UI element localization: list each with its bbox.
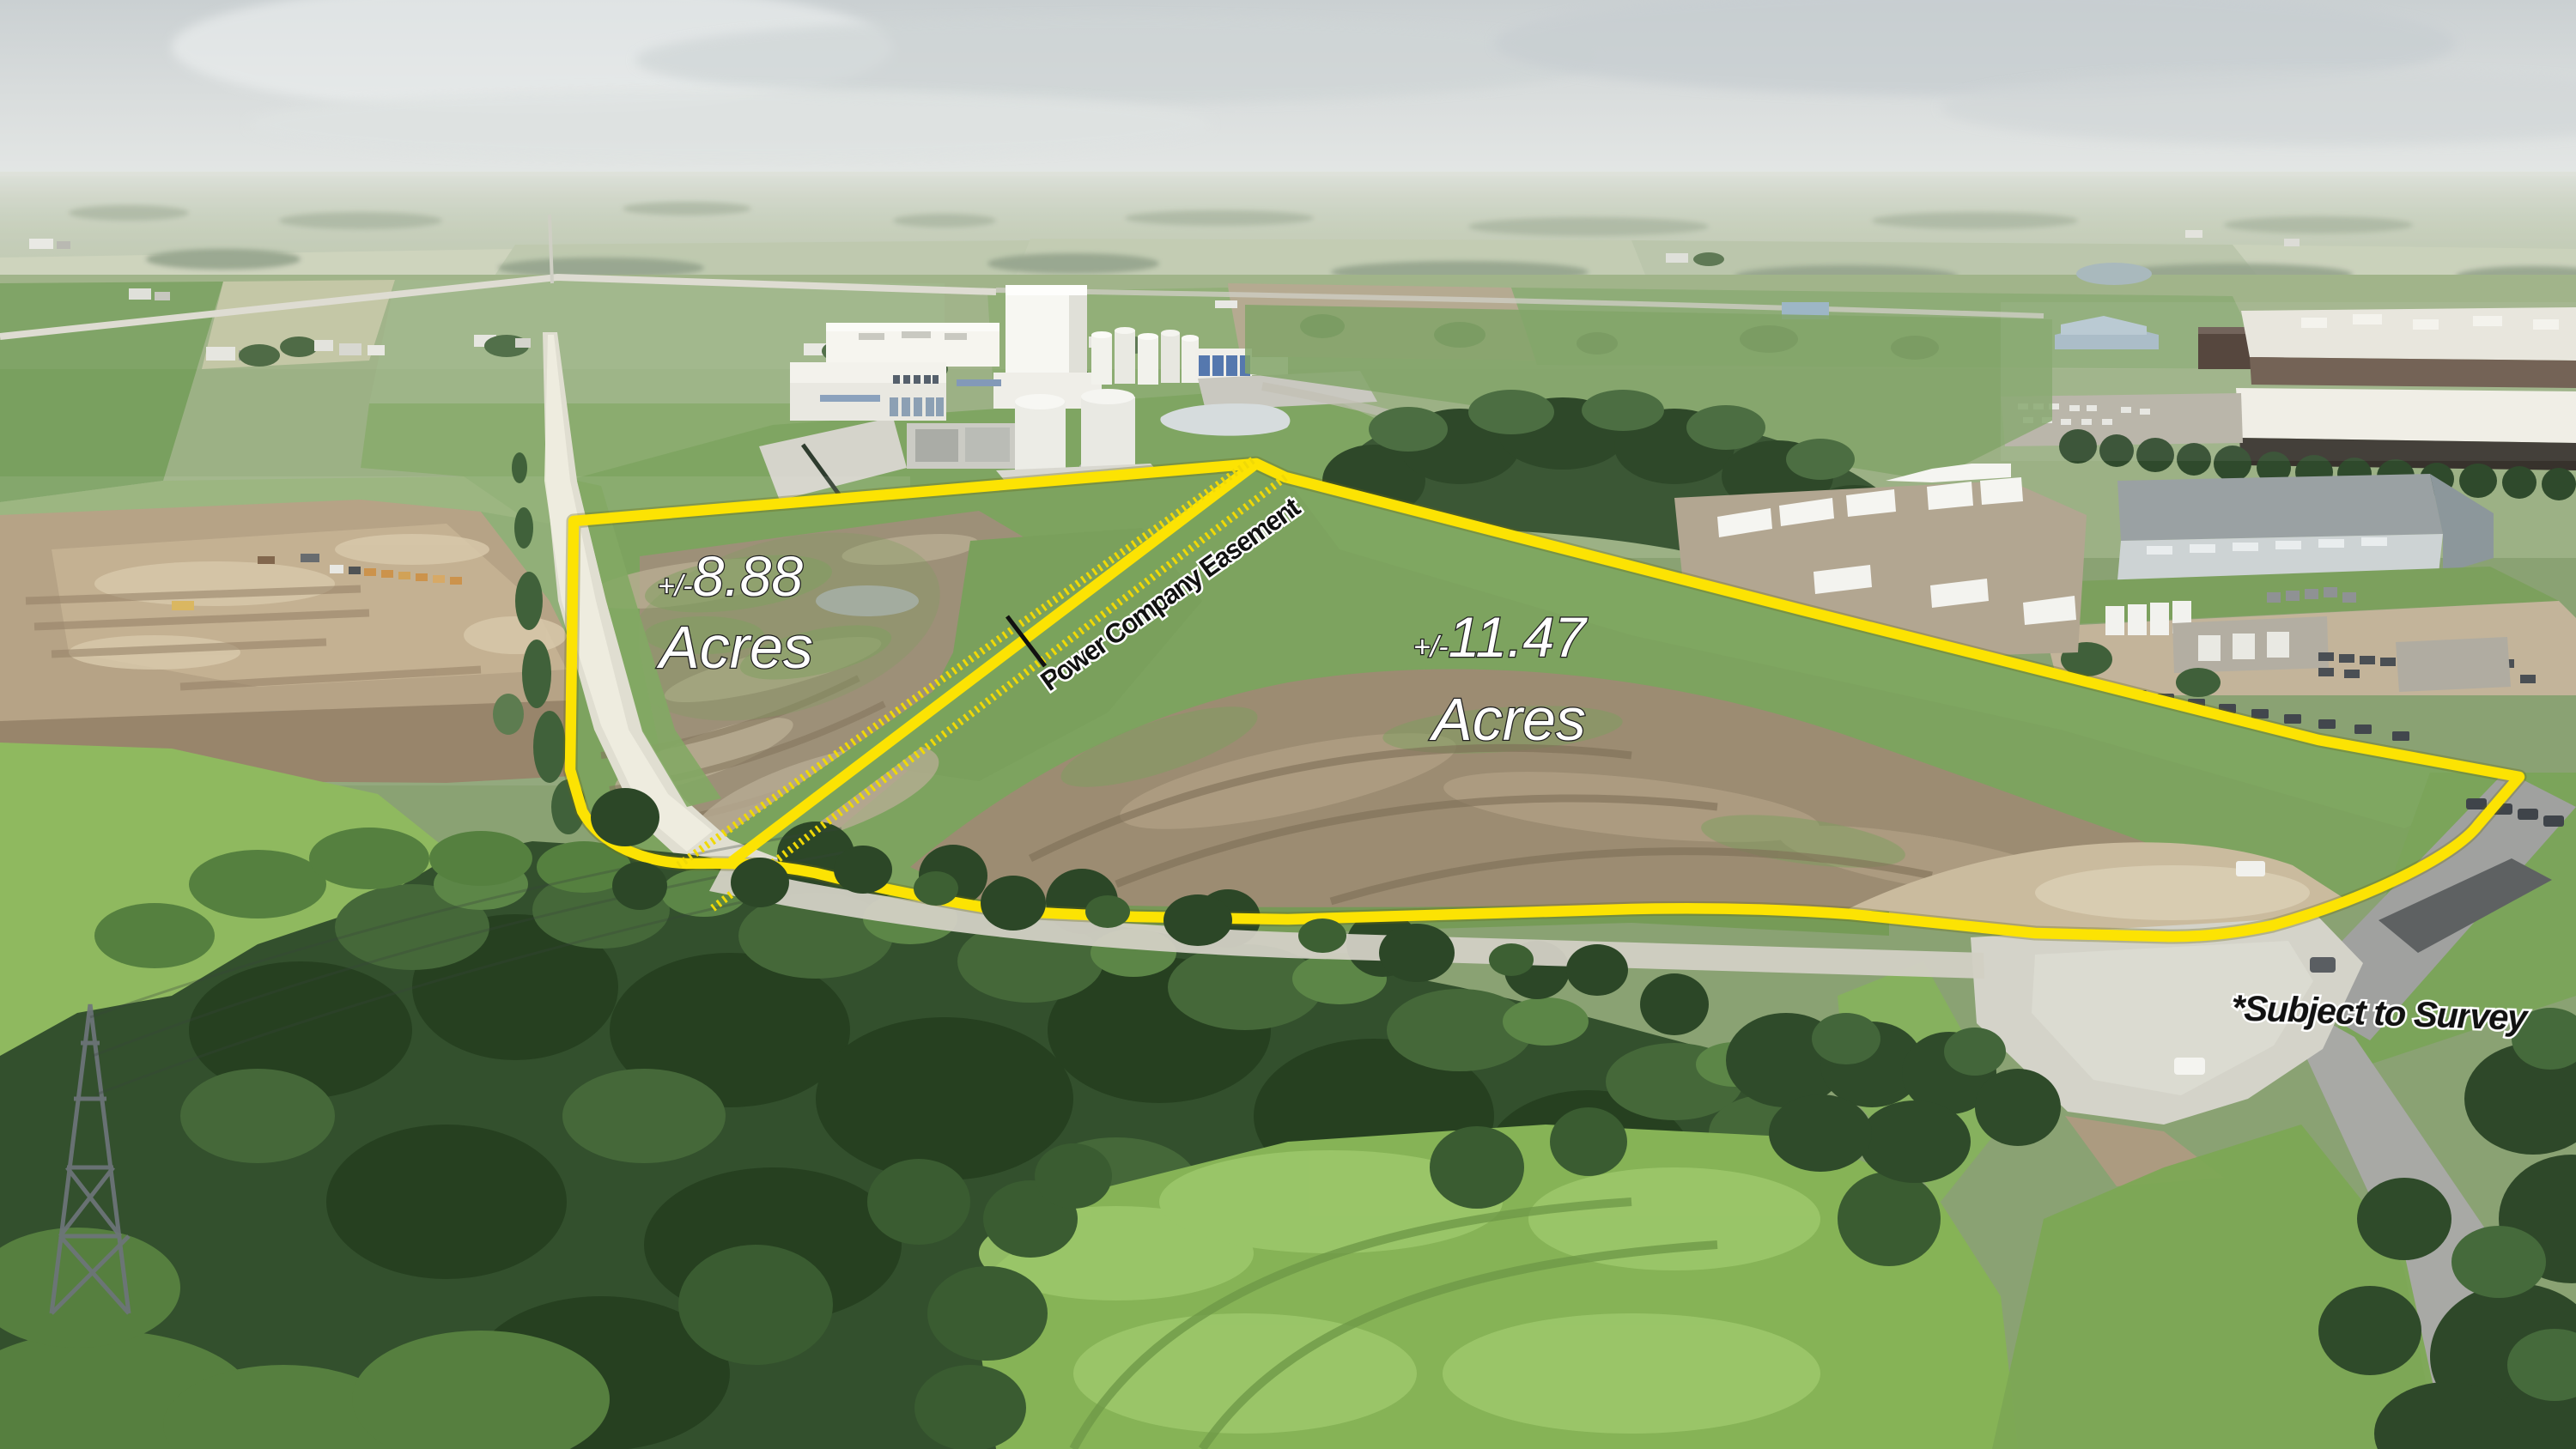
svg-text:Acres: Acres <box>1429 686 1586 753</box>
svg-text:Acres: Acres <box>656 614 813 681</box>
